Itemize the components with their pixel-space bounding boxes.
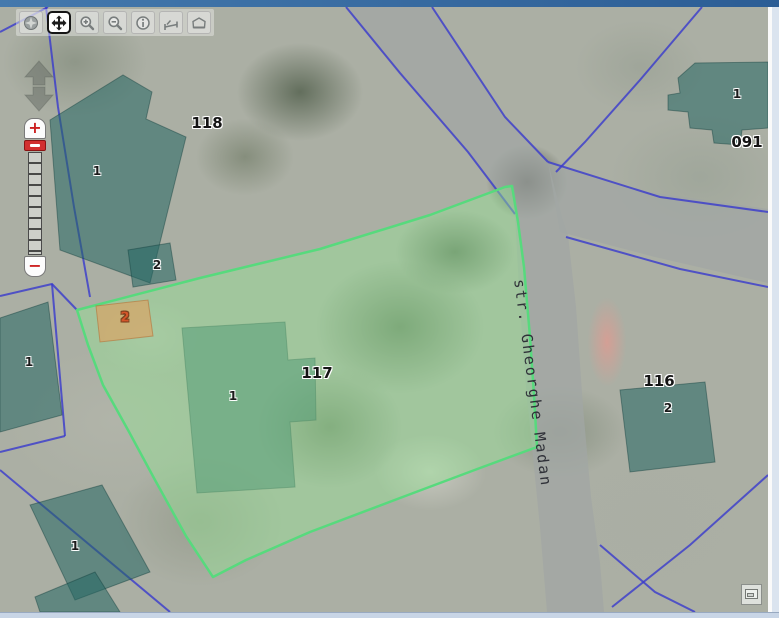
window-bottom-bar bbox=[0, 612, 779, 618]
zoom-slider-handle[interactable] bbox=[24, 140, 46, 151]
zoom-slider-control: + − bbox=[24, 118, 46, 277]
building-091-1 bbox=[668, 62, 768, 145]
window-top-bar bbox=[0, 0, 779, 7]
pan-updown-control bbox=[22, 60, 56, 112]
map-viewport[interactable]: 118 091 117 116 1 2 1 1 1 1 2 2 str. Ghe… bbox=[0, 7, 768, 612]
magnifier-minus-icon bbox=[107, 15, 123, 31]
globe-icon bbox=[23, 15, 39, 31]
overview-map-toggle-button[interactable] bbox=[741, 584, 762, 605]
zoom-out-tool-button[interactable] bbox=[103, 11, 127, 34]
map-toolbar bbox=[16, 9, 214, 36]
pan-arrows-icon bbox=[51, 15, 67, 31]
overview-map-icon bbox=[745, 589, 758, 599]
zoom-slider-track[interactable] bbox=[28, 152, 42, 255]
pan-up-icon[interactable] bbox=[25, 61, 53, 85]
zoom-out-button[interactable]: − bbox=[24, 256, 46, 277]
zoom-max-extent-button[interactable] bbox=[19, 11, 43, 34]
measure-area-button[interactable] bbox=[187, 11, 211, 34]
vector-overlay bbox=[0, 7, 768, 612]
measure-line-icon bbox=[163, 15, 179, 31]
selected-building-polygon[interactable] bbox=[96, 300, 153, 342]
zoom-in-tool-button[interactable] bbox=[75, 11, 99, 34]
info-icon bbox=[135, 15, 151, 31]
building-left-1 bbox=[0, 302, 62, 432]
pan-tool-button[interactable] bbox=[47, 11, 71, 34]
building-116-2 bbox=[620, 382, 715, 472]
magnifier-plus-icon bbox=[79, 15, 95, 31]
window-right-edge bbox=[768, 7, 779, 612]
pan-down-icon[interactable] bbox=[25, 87, 53, 111]
application-window: 118 091 117 116 1 2 1 1 1 1 2 2 str. Ghe… bbox=[0, 0, 779, 618]
identify-tool-button[interactable] bbox=[131, 11, 155, 34]
building-118-2 bbox=[128, 243, 176, 287]
measure-area-icon bbox=[191, 15, 207, 31]
zoom-in-button[interactable]: + bbox=[24, 118, 46, 139]
measure-distance-button[interactable] bbox=[159, 11, 183, 34]
